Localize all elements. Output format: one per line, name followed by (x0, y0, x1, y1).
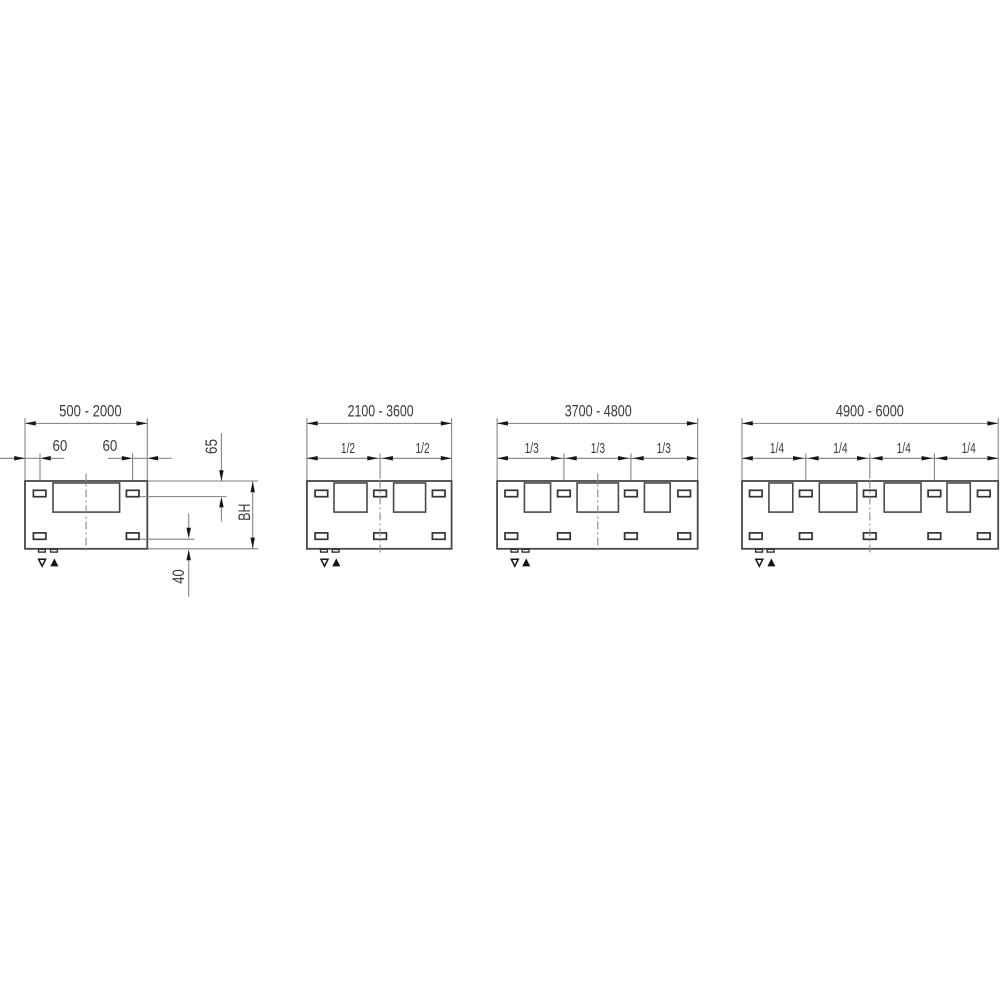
svg-text:BH: BH (235, 504, 254, 521)
svg-text:60: 60 (103, 438, 118, 455)
svg-text:2100 - 3600: 2100 - 3600 (348, 402, 414, 421)
svg-text:500 - 2000: 500 - 2000 (59, 402, 122, 421)
svg-text:40: 40 (169, 569, 188, 583)
svg-text:1/3: 1/3 (591, 440, 605, 457)
svg-text:1/3: 1/3 (525, 440, 539, 457)
svg-text:1/4: 1/4 (770, 440, 784, 457)
svg-text:3700 - 4800: 3700 - 4800 (565, 402, 632, 421)
svg-text:1/2: 1/2 (416, 440, 430, 457)
svg-text:1/4: 1/4 (962, 440, 976, 457)
svg-text:1/4: 1/4 (833, 440, 847, 457)
svg-text:1/3: 1/3 (657, 440, 671, 457)
svg-text:1/4: 1/4 (897, 440, 911, 457)
svg-text:1/2: 1/2 (341, 440, 355, 457)
svg-text:65: 65 (202, 439, 221, 454)
svg-text:4900 - 6000: 4900 - 6000 (836, 402, 904, 421)
svg-text:60: 60 (53, 438, 68, 455)
